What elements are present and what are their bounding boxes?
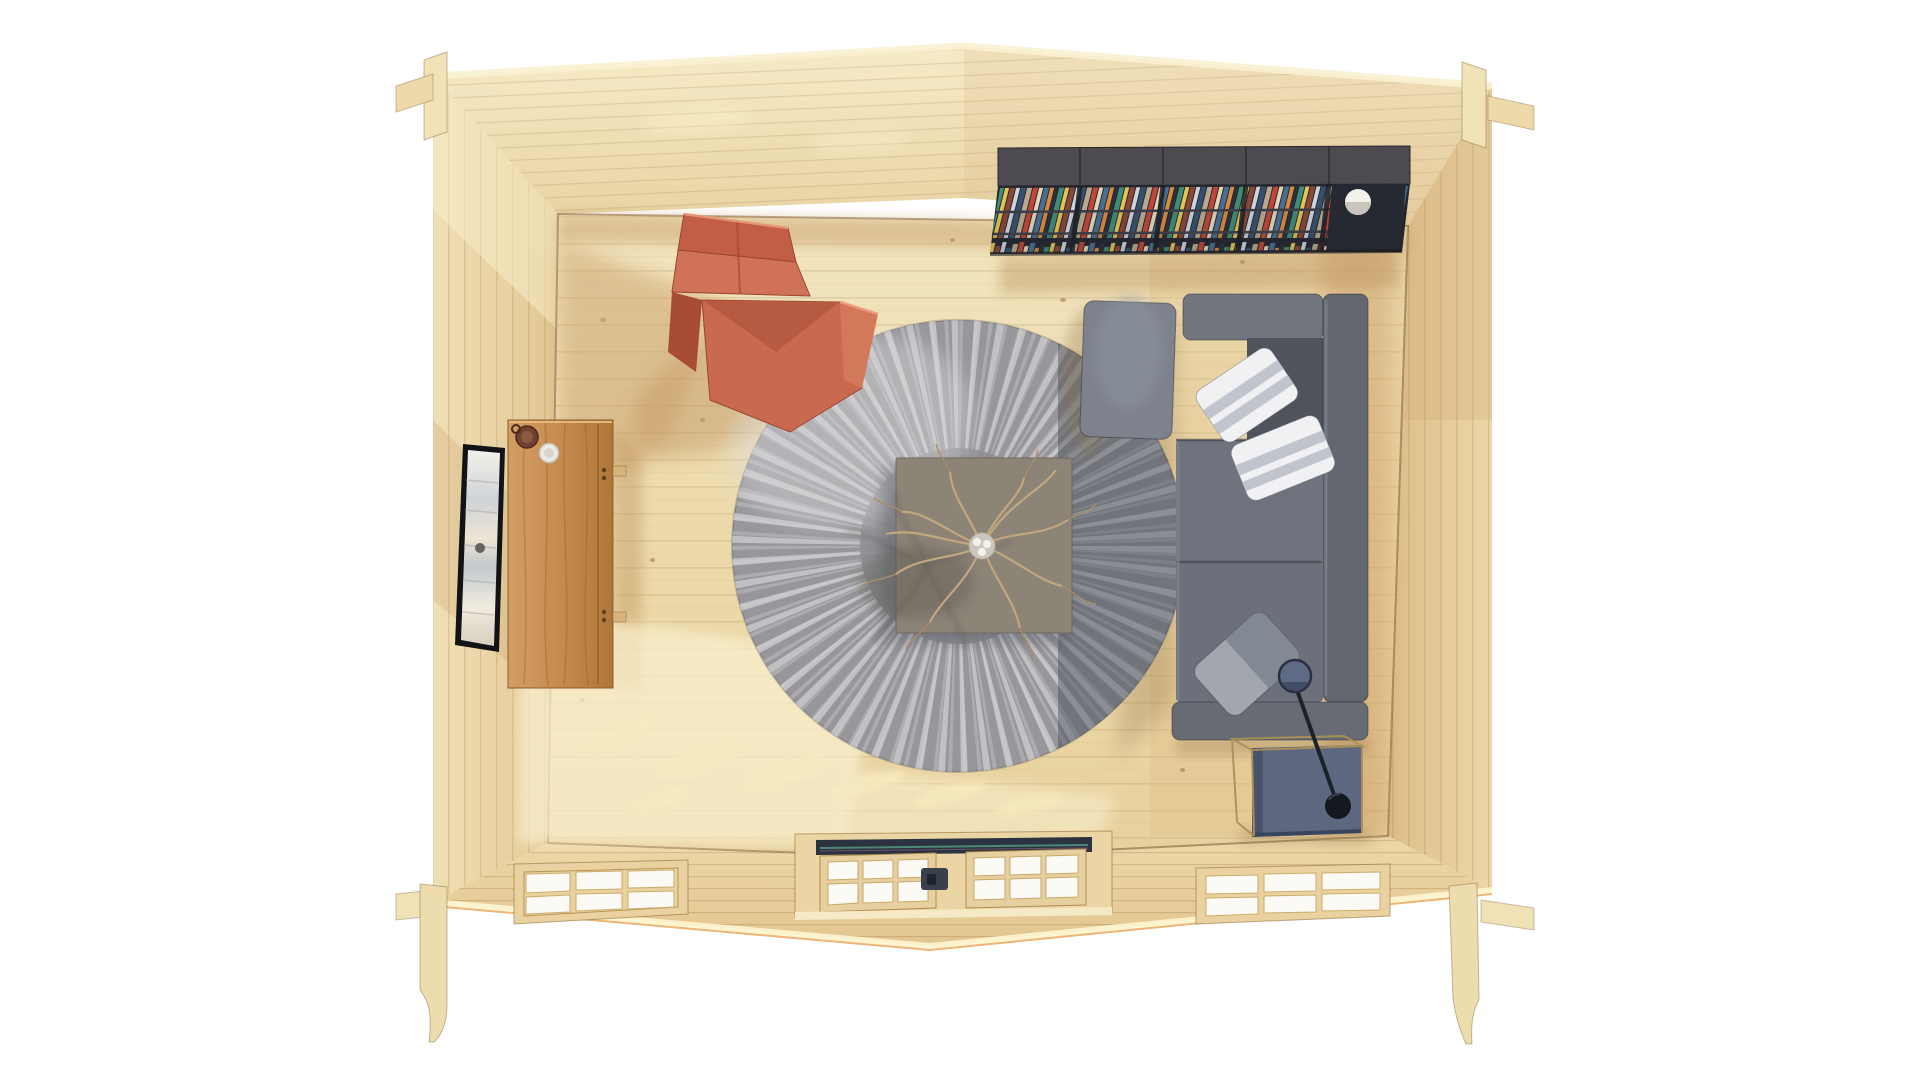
cup: White cup	[540, 444, 559, 463]
corner-post-top-right	[1462, 62, 1534, 148]
bookshelf-top-panel	[998, 146, 1410, 186]
cube-side-table: Steel-blue cube side table with brass fr…	[1232, 736, 1370, 844]
window-pane	[526, 873, 570, 893]
cup-inner	[544, 448, 554, 458]
corner-post-top-left	[396, 52, 447, 140]
flower	[983, 540, 991, 548]
door-pane	[828, 883, 858, 905]
corner-board-end	[1488, 96, 1534, 130]
door-pane	[1046, 855, 1078, 874]
flower	[978, 548, 986, 556]
window-pane	[576, 893, 622, 911]
sofa-arm-top	[1183, 294, 1323, 340]
window-pane	[576, 871, 622, 890]
door-pane	[828, 861, 858, 880]
door-pane	[1046, 877, 1078, 898]
mug-inner	[521, 431, 533, 443]
window-pane	[1206, 875, 1258, 894]
branch-shadow-blob	[858, 546, 974, 618]
window-pane	[526, 895, 570, 914]
hinge-dot	[602, 476, 606, 480]
flower	[973, 538, 981, 546]
hinge-dot	[602, 610, 606, 614]
corner-ledge	[1481, 900, 1534, 930]
tv-screen-dark-spot	[475, 543, 485, 553]
bookshelf: Dark wall shelf unit filled with books	[989, 146, 1410, 254]
window-pane	[1322, 893, 1380, 911]
render-canvas: Pine log cabin shell seen from above (ro…	[0, 0, 1920, 1080]
corner-board	[1462, 62, 1486, 148]
entrance-door: Double glazed door, six panes per leaf	[795, 831, 1112, 920]
sofa-backrest	[1323, 294, 1368, 702]
window-left: Six-pane window	[514, 860, 688, 924]
door-pane	[974, 879, 1005, 900]
door-pane	[974, 857, 1005, 876]
window-pane	[1264, 895, 1316, 913]
sofa-arm-bottom	[1172, 702, 1368, 740]
window-right: Six-pane window	[1196, 864, 1390, 924]
hinge-dot	[602, 468, 606, 472]
corner-bracket	[420, 884, 447, 1042]
corner-bracket	[1449, 883, 1479, 1044]
cabin-topdown-render: Pine log cabin shell seen from above (ro…	[0, 0, 1920, 1080]
window-pane	[1206, 897, 1258, 916]
tv-sideboard: Oak media sideboard Brown mug White cup	[508, 420, 626, 688]
corner-post-bottom-right	[1449, 883, 1534, 1044]
bookshelf-shadow	[1000, 252, 1400, 294]
window-pane	[1264, 873, 1316, 892]
lamp-base-weight	[1325, 793, 1351, 819]
sideboard-peg-bottom	[613, 612, 626, 622]
door-pane	[1010, 878, 1041, 899]
hinge-dot	[602, 618, 606, 622]
sofa-chaise	[1080, 294, 1177, 439]
door-pane	[1010, 856, 1041, 875]
sideboard-peg-top	[613, 466, 626, 476]
door-pane	[863, 860, 893, 879]
window-pane	[628, 891, 674, 909]
window-pane	[628, 870, 674, 888]
coffee-table: Square gray coffee table	[847, 444, 1096, 660]
door-handle-notch	[927, 874, 936, 885]
window-pane	[1322, 872, 1380, 890]
wall-tv: Flat-screen TV on left wall	[455, 444, 505, 652]
corner-post-bottom-left	[396, 884, 447, 1042]
side-table-panel	[1252, 745, 1362, 837]
door-pane	[863, 882, 893, 903]
